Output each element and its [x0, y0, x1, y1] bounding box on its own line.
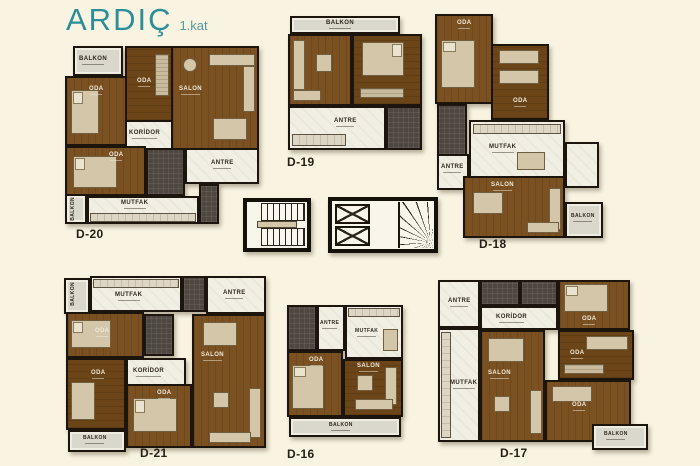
elevator-core [328, 197, 438, 253]
room-label: ODA [457, 20, 472, 29]
room-bathroom [520, 280, 558, 306]
furniture-coffee-table [316, 54, 332, 72]
furniture-table [517, 152, 545, 170]
plan-d16[interactable]: ANTRE MUTFAK ODA SALON BALKON [285, 303, 405, 440]
room-label: ODA [137, 78, 152, 87]
furniture-pillow [75, 158, 85, 170]
plan-d18[interactable]: ODA ODA ANTRE MUTFAK SALON BALKON [433, 12, 605, 238]
winder-stair-symbol [398, 202, 433, 248]
unit-label-d16: D-16 [287, 447, 315, 461]
room-label: BALKON [71, 282, 77, 306]
room-label: KORİDOR [496, 314, 527, 323]
room-label: MUTFAK [115, 292, 142, 301]
room-kitchen-nook [565, 142, 599, 188]
room-label: SALON [491, 182, 514, 191]
plan-d19[interactable]: BALKON ANTRE [286, 14, 424, 152]
unit-label-d18: D-18 [479, 237, 507, 251]
plan-d17[interactable]: ANTRE KORİDOR ODA ODA ODA SALON MUTFAK B… [436, 274, 650, 452]
furniture-wardrobe [360, 88, 404, 98]
room-label: MUTFAK [489, 144, 516, 153]
room-label: BALKON [604, 432, 628, 440]
furniture-kitchen-counter [90, 213, 196, 222]
room-label: ODA [513, 98, 528, 107]
furniture-pillow [294, 367, 306, 377]
furniture-bed [499, 70, 539, 84]
room-label: ODA [109, 152, 124, 161]
room-label: ANTRE [223, 290, 246, 299]
furniture-sofa [209, 432, 251, 443]
room-label: SALON [179, 86, 202, 95]
room-label: ODA [572, 402, 587, 411]
room-label: SALON [488, 370, 511, 379]
furniture-wardrobe [564, 364, 604, 374]
furniture-desk [552, 386, 592, 402]
room-wc [182, 276, 206, 312]
furniture-bed [499, 50, 539, 64]
furniture-coffee-table [357, 375, 373, 391]
unit-label-d17: D-17 [500, 446, 528, 460]
room-balcony [64, 278, 90, 314]
furniture-pillow [566, 286, 578, 296]
furniture-pillow [392, 44, 402, 57]
furniture-coffee-table [213, 392, 229, 408]
unit-label-d21: D-21 [140, 446, 168, 460]
furniture-coffee-table [494, 396, 510, 412]
room-label: ANTRE [211, 160, 234, 169]
furniture-bed [586, 336, 628, 350]
furniture-sofa [293, 90, 321, 101]
room-label: ODA [582, 316, 597, 325]
furniture-kitchen-counter [348, 308, 400, 317]
furniture-pillow [443, 42, 456, 52]
project-name: ARDIÇ [66, 2, 172, 37]
room-label: ODA [309, 357, 324, 366]
room-label: ANTRE [334, 118, 357, 127]
furniture-table [383, 329, 398, 351]
room-wc [199, 184, 219, 224]
room-bathroom [146, 148, 185, 196]
furniture-armchair [183, 58, 197, 72]
staircase-symbol [261, 228, 305, 246]
room-label: MUTFAK [355, 329, 378, 337]
room-label: ANTRE [441, 164, 464, 173]
room-bathroom [480, 280, 520, 306]
furniture-dining-table [488, 338, 524, 362]
furniture-bed [71, 382, 95, 420]
room-label: SALON [357, 363, 380, 372]
plan-d21[interactable]: BALKON MUTFAK ANTRE ODA ODA KORİDOR ODA … [63, 272, 267, 454]
furniture-sofa [527, 222, 559, 233]
unit-label-d20: D-20 [76, 227, 104, 241]
room-label: BALKON [79, 56, 107, 65]
room-label: ODA [570, 350, 585, 359]
furniture-wardrobe [155, 54, 169, 96]
floor-label: 1.kat [179, 18, 207, 33]
room-label: ODA [89, 86, 104, 95]
room-label: BALKON [329, 423, 353, 431]
furniture-sofa [243, 66, 255, 112]
furniture-sofa [293, 40, 305, 90]
room-bathroom [386, 106, 422, 150]
room-label: KORİDOR [133, 368, 164, 377]
plan-d20[interactable]: BALKON ODA ODA SALON KORİDOR ANTRE ODA M… [63, 44, 259, 226]
unit-label-d19: D-19 [287, 155, 315, 169]
elevator-symbol [335, 226, 370, 246]
room-label: SALON [201, 352, 224, 361]
room-label: BALKON [71, 197, 77, 221]
room-label: BALKON [571, 214, 595, 222]
room-label: MUTFAK [121, 200, 148, 209]
room-bathroom [144, 314, 174, 356]
room-label: ODA [91, 370, 106, 379]
project-title: ARDIÇ1.kat [66, 2, 208, 38]
room-label: ODA [157, 390, 172, 399]
furniture-dining-table [203, 322, 237, 346]
furniture-sofa [530, 390, 542, 434]
room-label: KORİDOR [129, 130, 160, 139]
furniture-kitchen-counter [93, 279, 179, 288]
furniture-pillow [135, 400, 145, 413]
room-label: ANTRE [320, 321, 339, 329]
floorplan-sheet: ARDIÇ1.kat BALKON ODA ODA SALON KORİDOR … [0, 0, 700, 466]
room-label: MUTFAK [450, 380, 477, 389]
furniture-pillow [73, 92, 83, 104]
staircase-symbol [261, 203, 305, 221]
room-bathroom [437, 104, 467, 156]
furniture-dining-table [473, 192, 503, 214]
stair-handrail [257, 221, 297, 228]
furniture-sofa [355, 399, 393, 410]
room-bathroom [287, 305, 317, 351]
room-label: ODA [95, 328, 110, 337]
furniture-kitchen-counter [292, 134, 346, 146]
furniture-dining-table [213, 118, 247, 140]
room-label: ANTRE [448, 298, 471, 307]
furniture-sofa [209, 54, 255, 66]
furniture-kitchen-counter [473, 124, 561, 134]
room-label: BALKON [83, 436, 107, 444]
furniture-pillow [73, 322, 83, 333]
furniture-sofa [249, 388, 261, 438]
staircase-core [243, 198, 311, 252]
elevator-symbol [335, 204, 370, 224]
room-label: BALKON [326, 20, 354, 29]
